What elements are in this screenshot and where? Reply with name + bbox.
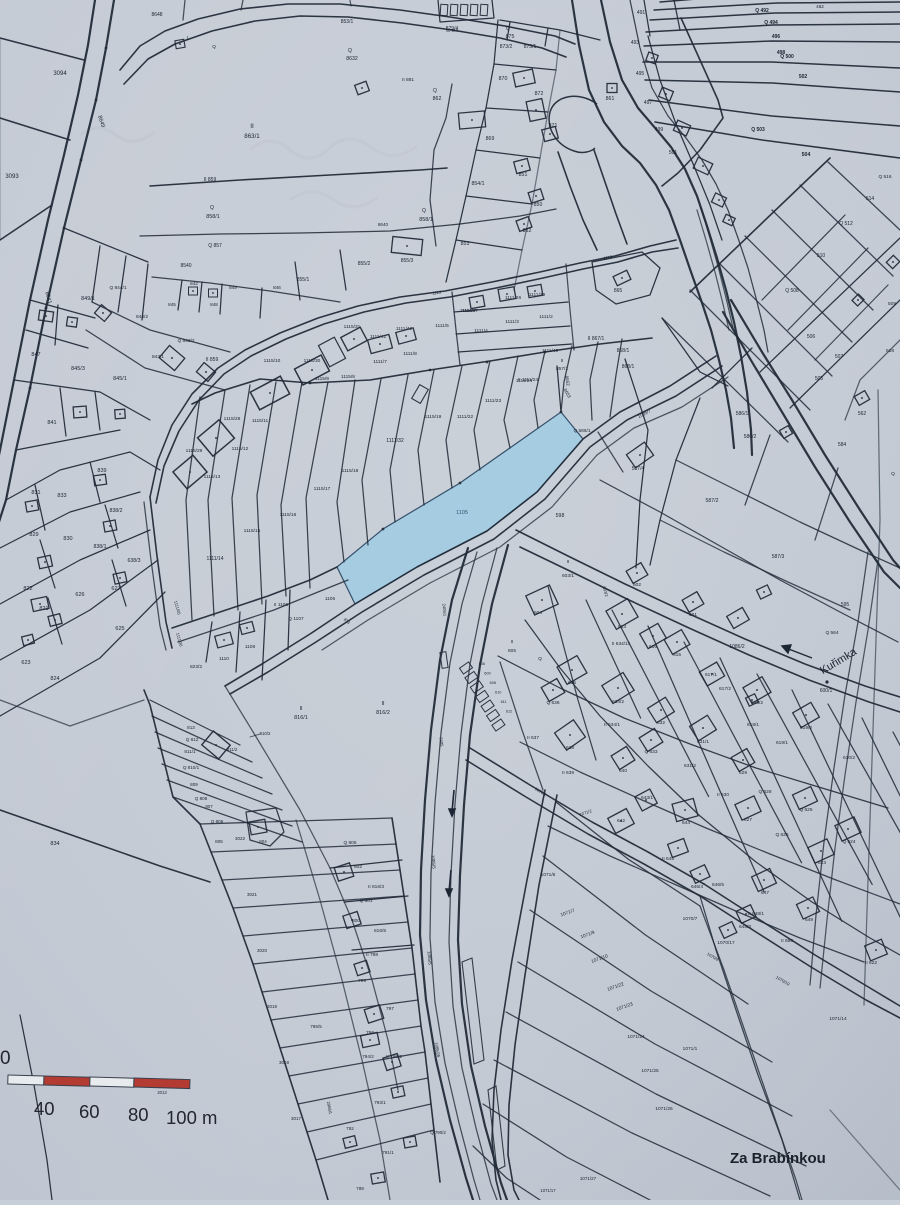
svg-text:838/1: 838/1 bbox=[94, 544, 107, 550]
svg-text:Q: Q bbox=[433, 88, 437, 94]
svg-text:Q: Q bbox=[210, 205, 214, 211]
svg-text:3094: 3094 bbox=[53, 71, 67, 77]
svg-text:854/1: 854/1 bbox=[472, 181, 485, 187]
svg-text:1111/8: 1111/8 bbox=[403, 351, 417, 357]
svg-text:845/3: 845/3 bbox=[71, 366, 85, 372]
svg-text:606: 606 bbox=[479, 662, 485, 666]
svg-text:613: 613 bbox=[618, 624, 626, 630]
svg-text:794/2: 794/2 bbox=[362, 1054, 374, 1059]
svg-text:631/2: 631/2 bbox=[684, 763, 696, 769]
svg-text:II 881: II 881 bbox=[402, 77, 414, 83]
svg-text:Q 626: Q 626 bbox=[775, 832, 788, 838]
svg-text:3093: 3093 bbox=[5, 174, 19, 180]
svg-text:647: 647 bbox=[761, 890, 769, 896]
svg-text:Q 503: Q 503 bbox=[751, 127, 765, 133]
svg-text:II 648/1: II 648/1 bbox=[748, 911, 764, 917]
svg-text:1115/18: 1115/18 bbox=[342, 468, 359, 474]
svg-text:848: 848 bbox=[210, 302, 218, 307]
svg-text:II 1111/24: II 1111/24 bbox=[518, 377, 539, 383]
svg-text:1115/10: 1115/10 bbox=[264, 358, 281, 364]
svg-text:791/1: 791/1 bbox=[382, 1150, 394, 1155]
svg-text:491: 491 bbox=[637, 10, 646, 16]
svg-text:635: 635 bbox=[568, 680, 576, 686]
svg-text:807: 807 bbox=[205, 804, 213, 809]
svg-text:648/3: 648/3 bbox=[739, 924, 751, 930]
svg-text:1115/16: 1115/16 bbox=[280, 512, 297, 518]
svg-text:625: 625 bbox=[115, 626, 124, 632]
svg-text:505: 505 bbox=[815, 376, 824, 382]
svg-text:496: 496 bbox=[772, 34, 781, 40]
svg-text:499: 499 bbox=[655, 127, 664, 133]
svg-text:811/2: 811/2 bbox=[227, 747, 238, 752]
svg-text:789: 789 bbox=[356, 1186, 364, 1191]
svg-text:II 637: II 637 bbox=[527, 735, 539, 741]
svg-text:1111/22: 1111/22 bbox=[457, 414, 474, 420]
svg-text:630/2: 630/2 bbox=[843, 755, 855, 761]
svg-text:634/2: 634/2 bbox=[612, 699, 624, 705]
svg-text:830: 830 bbox=[63, 536, 72, 542]
svg-text:855/2: 855/2 bbox=[358, 261, 371, 267]
svg-text:Q 492: Q 492 bbox=[755, 8, 769, 14]
svg-text:Za Brabínkou: Za Brabínkou bbox=[730, 1150, 826, 1167]
svg-text:871: 871 bbox=[549, 123, 558, 129]
svg-text:605: 605 bbox=[508, 648, 516, 654]
svg-text:Q: Q bbox=[212, 44, 216, 49]
svg-text:3020: 3020 bbox=[257, 948, 268, 953]
svg-text:462: 462 bbox=[816, 4, 824, 9]
svg-text:Q 844/1: Q 844/1 bbox=[109, 285, 126, 291]
svg-text:598: 598 bbox=[556, 513, 565, 519]
svg-text:631/1: 631/1 bbox=[697, 739, 709, 745]
svg-text:495: 495 bbox=[636, 71, 645, 77]
svg-text:642: 642 bbox=[617, 818, 625, 824]
svg-text:1111/7: 1111/7 bbox=[373, 359, 387, 365]
svg-text:811/1: 811/1 bbox=[184, 749, 196, 754]
svg-text:844/2: 844/2 bbox=[136, 314, 148, 320]
svg-text:Q: Q bbox=[422, 208, 426, 214]
svg-text:601: 601 bbox=[689, 612, 697, 618]
svg-text:834: 834 bbox=[50, 841, 59, 847]
svg-text:II: II bbox=[511, 639, 514, 645]
svg-text:1111/3: 1111/3 bbox=[505, 319, 519, 325]
svg-text:Q 625: Q 625 bbox=[799, 807, 812, 813]
svg-text:1108: 1108 bbox=[245, 644, 256, 650]
svg-text:1071/17: 1071/17 bbox=[540, 1188, 556, 1193]
svg-text:II 634/1x: II 634/1x bbox=[612, 641, 631, 647]
svg-text:793/1: 793/1 bbox=[374, 1100, 386, 1105]
svg-text:816/5: 816/5 bbox=[374, 928, 386, 934]
svg-text:644: 644 bbox=[682, 820, 690, 826]
svg-text:100 m: 100 m bbox=[166, 1107, 217, 1128]
svg-text:813: 813 bbox=[187, 725, 195, 730]
svg-text:1070/7: 1070/7 bbox=[683, 916, 698, 922]
svg-text:855/3: 855/3 bbox=[401, 258, 414, 264]
svg-text:II 645: II 645 bbox=[662, 856, 674, 862]
svg-text:875: 875 bbox=[506, 34, 515, 40]
svg-text:1111/2: 1111/2 bbox=[539, 314, 553, 320]
svg-text:2405: 2405 bbox=[439, 737, 445, 747]
svg-text:506: 506 bbox=[807, 334, 816, 340]
svg-text:1071/26: 1071/26 bbox=[655, 1106, 673, 1112]
svg-text:1071/1: 1071/1 bbox=[683, 1046, 698, 1052]
svg-text:II: II bbox=[561, 358, 564, 364]
svg-text:863/1: 863/1 bbox=[244, 133, 260, 140]
svg-text:604: 604 bbox=[534, 610, 542, 616]
svg-text:Q 806: Q 806 bbox=[211, 819, 224, 824]
svg-text:II 650: II 650 bbox=[781, 938, 793, 944]
svg-text:609: 609 bbox=[484, 672, 490, 676]
svg-text:829: 829 bbox=[29, 532, 38, 538]
svg-text:1111/40: 1111/40 bbox=[542, 348, 559, 354]
svg-text:851: 851 bbox=[519, 172, 528, 178]
svg-text:792: 792 bbox=[346, 1126, 354, 1131]
svg-text:638/3: 638/3 bbox=[128, 558, 141, 564]
svg-text:1111/14: 1111/14 bbox=[207, 556, 224, 562]
svg-text:1115/29: 1115/29 bbox=[186, 448, 203, 454]
svg-text:Q: Q bbox=[506, 26, 510, 32]
svg-text:586/1: 586/1 bbox=[736, 411, 749, 417]
svg-text:649: 649 bbox=[805, 917, 813, 923]
svg-text:1115/31: 1115/31 bbox=[344, 324, 361, 330]
svg-text:841: 841 bbox=[47, 420, 56, 426]
svg-text:602: 602 bbox=[633, 582, 641, 588]
svg-text:II 639: II 639 bbox=[562, 770, 574, 776]
svg-text:8540: 8540 bbox=[180, 263, 191, 269]
svg-text:Q 801: Q 801 bbox=[359, 898, 372, 904]
svg-text:805: 805 bbox=[215, 839, 223, 844]
svg-text:1111/23: 1111/23 bbox=[485, 398, 502, 404]
svg-text:II 1106: II 1106 bbox=[274, 602, 289, 608]
svg-text:610: 610 bbox=[495, 691, 501, 695]
svg-text:509: 509 bbox=[888, 301, 896, 307]
svg-text:3022: 3022 bbox=[235, 836, 246, 841]
svg-text:Q 1107: Q 1107 bbox=[288, 616, 304, 622]
svg-text:822: 822 bbox=[23, 586, 32, 592]
svg-text:8640: 8640 bbox=[378, 222, 389, 227]
svg-text:616: 616 bbox=[649, 644, 657, 650]
svg-text:643/1: 643/1 bbox=[641, 795, 653, 801]
svg-text:845: 845 bbox=[168, 302, 176, 307]
svg-text:846: 846 bbox=[273, 285, 281, 290]
svg-text:858/1: 858/1 bbox=[206, 214, 220, 220]
svg-text:608: 608 bbox=[490, 681, 496, 685]
svg-text:3018: 3018 bbox=[279, 1060, 290, 1065]
svg-text:514: 514 bbox=[866, 196, 875, 202]
svg-text:824: 824 bbox=[50, 676, 59, 682]
svg-text:Q 808: Q 808 bbox=[195, 796, 208, 801]
svg-text:Q 633: Q 633 bbox=[644, 749, 657, 755]
svg-text:Q 494: Q 494 bbox=[764, 20, 778, 26]
svg-text:617/2: 617/2 bbox=[719, 686, 731, 692]
svg-text:1110: 1110 bbox=[219, 656, 229, 662]
svg-text:II: II bbox=[299, 706, 303, 712]
svg-text:617/1: 617/1 bbox=[705, 672, 717, 678]
svg-text:1111/5: 1111/5 bbox=[435, 323, 449, 329]
svg-text:619/1: 619/1 bbox=[776, 740, 788, 746]
svg-text:869: 869 bbox=[486, 136, 495, 142]
svg-text:870: 870 bbox=[499, 76, 508, 82]
svg-text:0: 0 bbox=[0, 1048, 11, 1069]
svg-text:627: 627 bbox=[111, 586, 120, 592]
svg-text:823/2: 823/2 bbox=[190, 664, 202, 670]
svg-text:810/2: 810/2 bbox=[260, 731, 272, 736]
svg-text:611: 611 bbox=[501, 700, 507, 704]
svg-text:II 622: II 622 bbox=[865, 960, 877, 966]
svg-text:II 867/1: II 867/1 bbox=[588, 336, 605, 342]
svg-text:Q 624: Q 624 bbox=[842, 839, 855, 845]
svg-text:L: L bbox=[187, 36, 190, 42]
svg-text:1086/2: 1086/2 bbox=[729, 644, 745, 650]
svg-text:3017: 3017 bbox=[291, 1116, 302, 1121]
svg-text:847: 847 bbox=[31, 352, 40, 358]
svg-text:1115/15: 1115/15 bbox=[244, 528, 261, 534]
svg-text:623: 623 bbox=[818, 860, 826, 866]
svg-text:Q 790/2: Q 790/2 bbox=[430, 1130, 446, 1135]
svg-text:587/4: 587/4 bbox=[632, 466, 645, 472]
svg-text:8648: 8648 bbox=[151, 12, 162, 18]
svg-text:858/1: 858/1 bbox=[419, 217, 433, 223]
svg-text:Q 508: Q 508 bbox=[785, 288, 799, 294]
svg-text:816/1: 816/1 bbox=[294, 715, 308, 721]
svg-text:80: 80 bbox=[128, 1104, 149, 1125]
svg-text:595: 595 bbox=[841, 602, 850, 608]
svg-text:802: 802 bbox=[354, 864, 362, 870]
svg-text:3021: 3021 bbox=[247, 892, 258, 897]
svg-text:Q 805: Q 805 bbox=[343, 840, 356, 846]
svg-text:II: II bbox=[250, 123, 254, 130]
svg-text:II: II bbox=[381, 701, 385, 707]
svg-text:40: 40 bbox=[34, 1098, 55, 1119]
svg-text:618/2: 618/2 bbox=[751, 700, 763, 706]
svg-text:1071/14: 1071/14 bbox=[829, 1016, 847, 1022]
svg-text:510: 510 bbox=[817, 253, 826, 259]
svg-text:873/2: 873/2 bbox=[500, 44, 513, 50]
svg-text:646/5: 646/5 bbox=[712, 882, 724, 888]
svg-text:1071/6: 1071/6 bbox=[541, 872, 556, 878]
svg-text:831: 831 bbox=[31, 490, 40, 496]
svg-text:Q: Q bbox=[538, 656, 542, 662]
svg-text:1115/11: 1115/11 bbox=[252, 418, 269, 424]
svg-text:60: 60 bbox=[79, 1101, 100, 1122]
svg-text:1071/27: 1071/27 bbox=[580, 1176, 597, 1181]
svg-text:1070/17: 1070/17 bbox=[717, 940, 735, 946]
svg-text:843/1: 843/1 bbox=[152, 354, 164, 360]
svg-text:584: 584 bbox=[838, 442, 847, 448]
svg-text:1111/32: 1111/32 bbox=[386, 438, 404, 444]
svg-text:1115/28: 1115/28 bbox=[224, 416, 241, 422]
svg-text:Q 812: Q 812 bbox=[186, 737, 199, 742]
svg-text:850: 850 bbox=[534, 202, 543, 208]
svg-text:586/2: 586/2 bbox=[744, 434, 757, 440]
svg-text:II 798: II 798 bbox=[366, 952, 378, 958]
svg-text:1115/19: 1115/19 bbox=[425, 414, 442, 420]
svg-text:493: 493 bbox=[631, 40, 640, 46]
svg-text:Q 636: Q 636 bbox=[546, 700, 559, 706]
svg-text:797: 797 bbox=[386, 1006, 394, 1012]
svg-text:504: 504 bbox=[802, 152, 811, 158]
svg-text:II 634/1: II 634/1 bbox=[604, 722, 620, 728]
svg-text:833: 833 bbox=[57, 493, 66, 499]
svg-text:Q 586/1: Q 586/1 bbox=[573, 428, 590, 434]
svg-text:600/1: 600/1 bbox=[820, 688, 833, 694]
svg-text:Q 857: Q 857 bbox=[208, 243, 222, 249]
svg-text:Q 564: Q 564 bbox=[825, 630, 838, 636]
svg-text:Q 810/1: Q 810/1 bbox=[183, 765, 200, 770]
svg-text:1115/8: 1115/8 bbox=[341, 374, 355, 380]
svg-text:1106: 1106 bbox=[325, 596, 336, 602]
svg-text:II 630: II 630 bbox=[717, 792, 729, 798]
svg-text:632: 632 bbox=[657, 720, 665, 726]
svg-text:Q: Q bbox=[348, 48, 352, 54]
svg-text:809: 809 bbox=[190, 782, 198, 787]
svg-text:868/1: 868/1 bbox=[622, 364, 635, 370]
svg-text:799: 799 bbox=[358, 978, 366, 984]
svg-text:II 816/3: II 816/3 bbox=[368, 884, 384, 890]
svg-text:1115/17: 1115/17 bbox=[314, 486, 331, 492]
svg-text:615: 615 bbox=[673, 652, 681, 658]
svg-text:3019: 3019 bbox=[267, 1004, 278, 1009]
svg-text:868/1: 868/1 bbox=[617, 348, 630, 354]
svg-text:603/1: 603/1 bbox=[562, 573, 574, 579]
svg-text:638: 638 bbox=[566, 745, 574, 751]
svg-text:1071/25: 1071/25 bbox=[641, 1068, 659, 1074]
svg-text:816/2: 816/2 bbox=[376, 710, 390, 716]
svg-text:II 859: II 859 bbox=[206, 357, 219, 363]
svg-text:626: 626 bbox=[75, 592, 84, 598]
svg-text:1115/9: 1115/9 bbox=[315, 376, 329, 382]
svg-text:Q 843/2: Q 843/2 bbox=[177, 338, 194, 344]
svg-text:2013: 2013 bbox=[157, 1090, 167, 1095]
svg-text:873/1: 873/1 bbox=[524, 44, 537, 50]
svg-text:623: 623 bbox=[21, 660, 30, 666]
svg-text:862: 862 bbox=[433, 96, 442, 102]
svg-text:845/1: 845/1 bbox=[113, 376, 127, 382]
svg-text:861: 861 bbox=[606, 96, 615, 102]
svg-text:Q: Q bbox=[891, 471, 895, 477]
svg-text:1071/24: 1071/24 bbox=[627, 1034, 645, 1040]
svg-text:640: 640 bbox=[619, 768, 627, 774]
svg-text:II 859: II 859 bbox=[204, 177, 217, 183]
svg-text:507: 507 bbox=[835, 354, 844, 360]
svg-text:501: 501 bbox=[669, 150, 678, 156]
svg-text:619/2: 619/2 bbox=[800, 725, 812, 731]
svg-text:Q 628: Q 628 bbox=[758, 789, 771, 795]
svg-text:518: 518 bbox=[886, 348, 894, 354]
svg-text:618/1: 618/1 bbox=[747, 722, 759, 728]
svg-text:627: 627 bbox=[744, 817, 752, 823]
svg-text:838/2: 838/2 bbox=[110, 508, 123, 514]
svg-text:587/2: 587/2 bbox=[706, 498, 719, 504]
svg-text:562: 562 bbox=[858, 411, 867, 417]
svg-text:Q 516: Q 516 bbox=[878, 174, 891, 180]
svg-text:8632: 8632 bbox=[346, 56, 358, 62]
svg-text:646/4: 646/4 bbox=[691, 884, 703, 890]
svg-text:Q 512: Q 512 bbox=[839, 221, 853, 227]
svg-text:853/1: 853/1 bbox=[341, 19, 354, 25]
svg-text:587/3: 587/3 bbox=[772, 554, 785, 560]
svg-text:502: 502 bbox=[799, 74, 808, 80]
svg-text:855/1: 855/1 bbox=[297, 277, 310, 283]
svg-text:872: 872 bbox=[535, 91, 544, 97]
svg-text:865: 865 bbox=[614, 288, 623, 294]
svg-text:839: 839 bbox=[97, 468, 106, 474]
svg-text:Q 500: Q 500 bbox=[780, 54, 794, 60]
svg-text:612: 612 bbox=[506, 710, 512, 714]
svg-text:II: II bbox=[567, 559, 570, 565]
svg-text:795/5: 795/5 bbox=[310, 1024, 322, 1029]
svg-text:1115/30: 1115/30 bbox=[304, 358, 321, 364]
svg-text:629: 629 bbox=[739, 770, 747, 776]
svg-text:1105: 1105 bbox=[456, 510, 468, 516]
svg-text:879/4: 879/4 bbox=[446, 28, 458, 33]
